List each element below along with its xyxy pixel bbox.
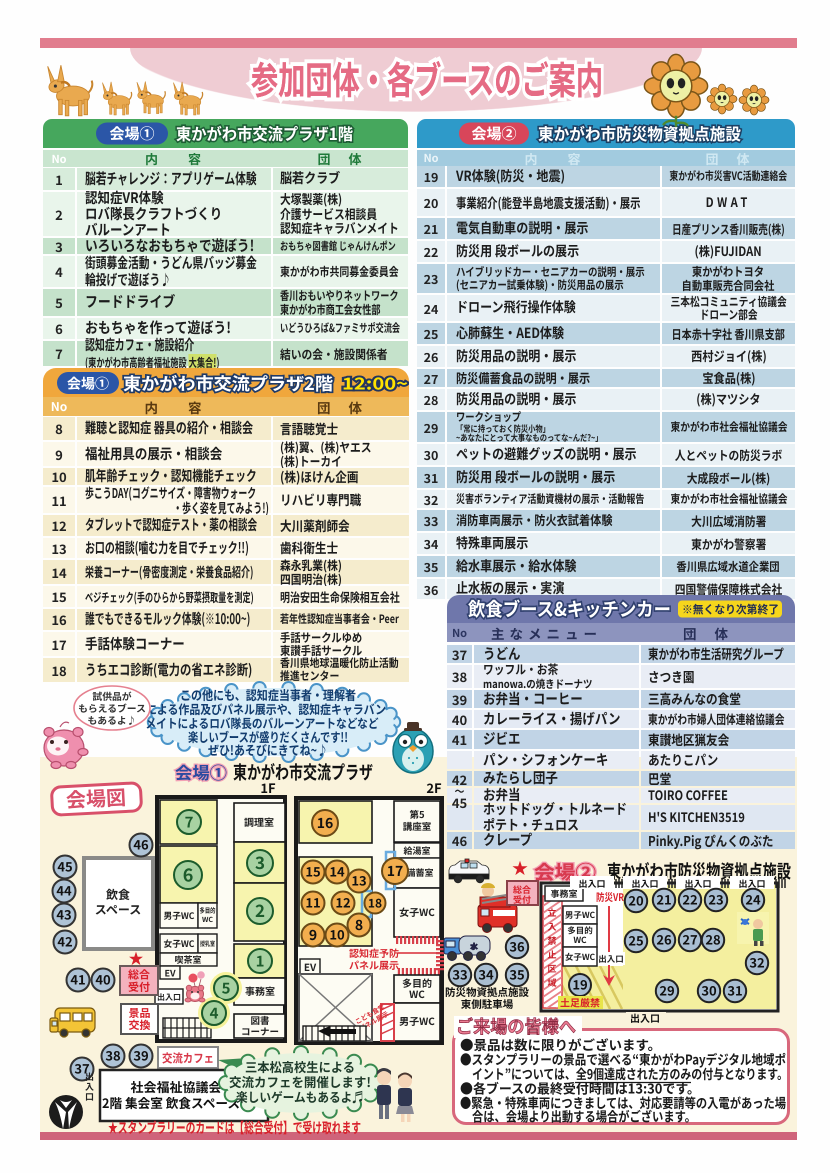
svg-text:試供品が: 試供品が <box>92 689 131 703</box>
svg-text:による作品及びパネル展示や、認知症キャラバン: による作品及びパネル展示や、認知症キャラバン <box>146 699 386 718</box>
svg-text:メイトによるロバ隊長のバルーンアートなどなど: メイトによるロバ隊長のバルーンアートなどなど <box>146 713 379 732</box>
svg-text:もらえるブース: もらえるブース <box>78 701 146 715</box>
svg-text:もあるよ♪: もあるよ♪ <box>88 713 137 727</box>
svg-text:この他にも、認知症当事者・理解者: この他にも、認知症当事者・理解者 <box>180 685 356 704</box>
svg-text:楽しいブースが盛りだくさんです!!: 楽しいブースが盛りだくさんです!! <box>188 727 348 746</box>
